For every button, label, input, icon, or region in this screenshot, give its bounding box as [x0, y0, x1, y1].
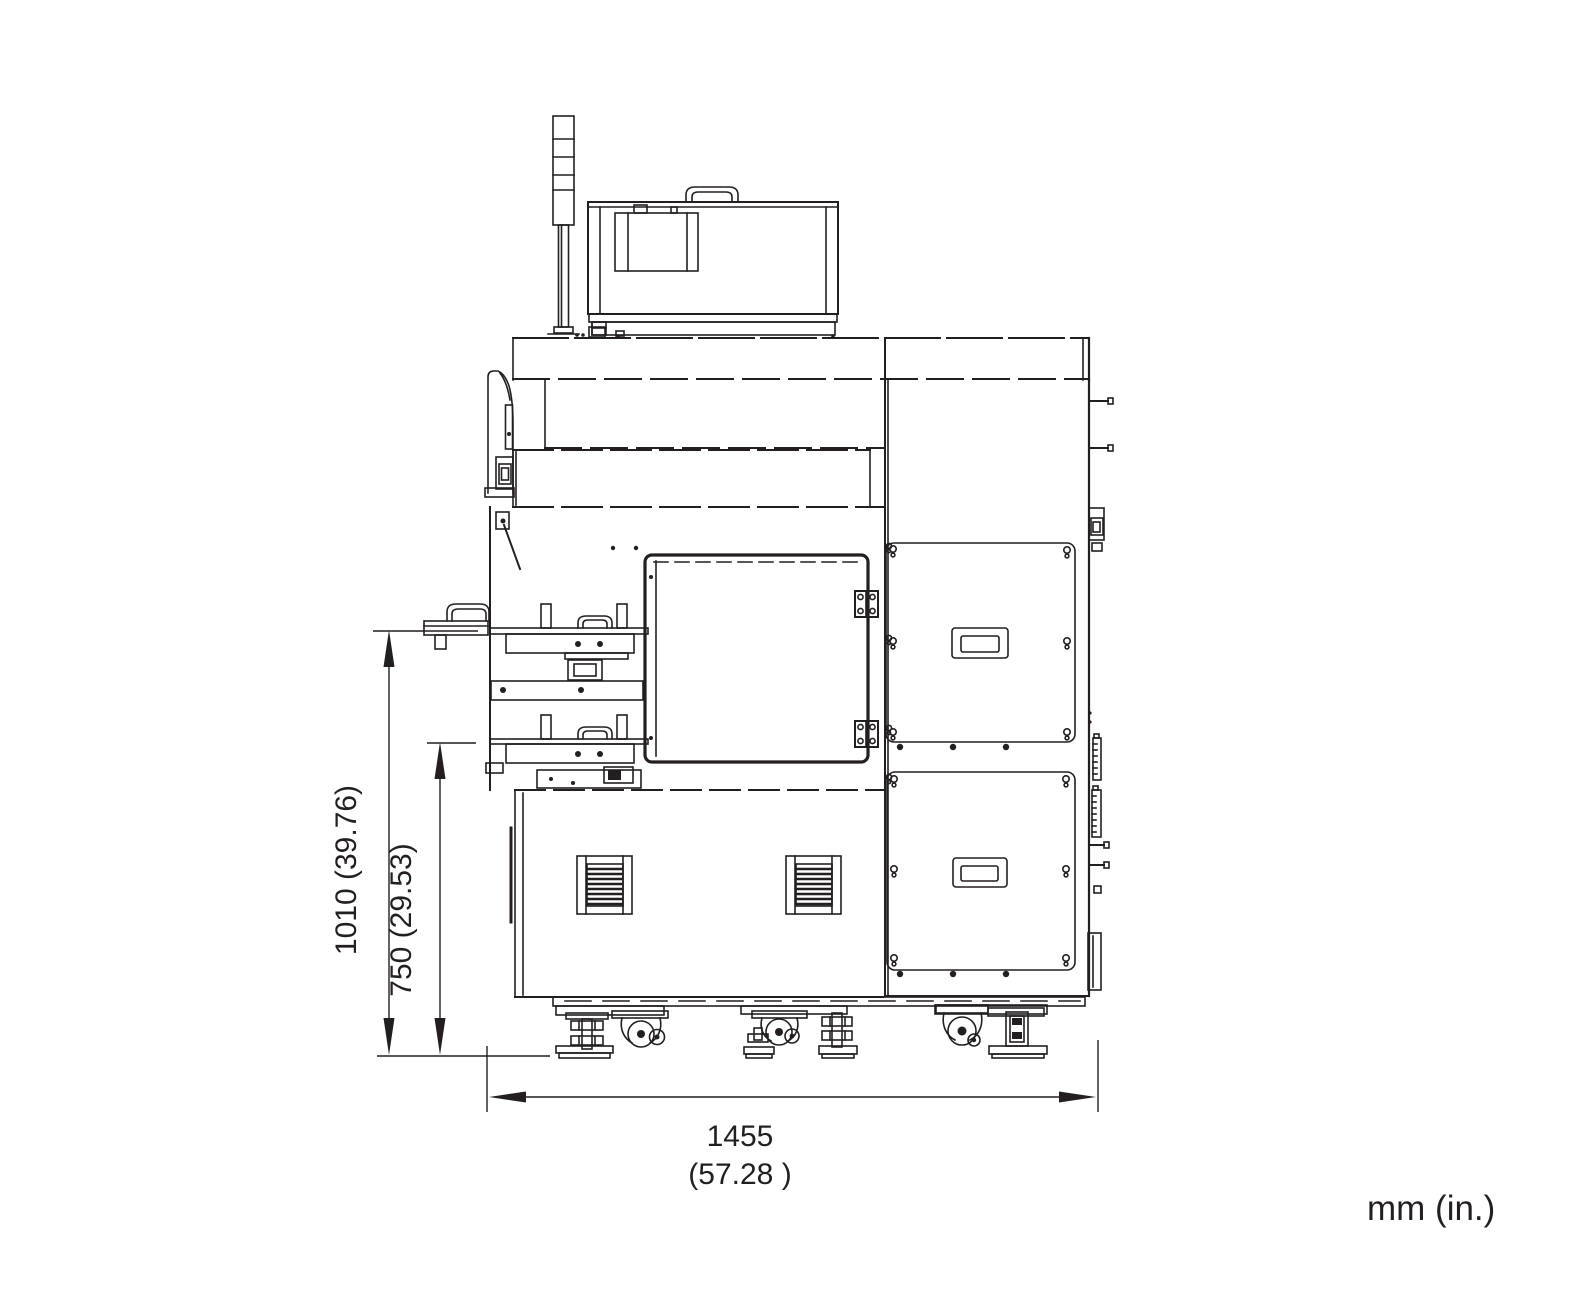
panel-screws — [890, 546, 1070, 740]
top-box-screen-panel — [615, 213, 698, 271]
leveling-foot-1 — [556, 1013, 613, 1058]
side-shelf — [424, 604, 489, 649]
terminal-strip-1 — [1093, 734, 1101, 780]
lower-right-panel — [887, 772, 1075, 970]
upper-right-panel — [886, 543, 1075, 742]
dim-label-table-height: 750 (29.53) — [385, 843, 418, 996]
door-hinge-top — [855, 591, 878, 617]
dim-label-overall-width-in: (57.28 ) — [688, 1158, 791, 1191]
front-lower-panel — [511, 790, 883, 997]
signal-tower-light — [548, 116, 579, 334]
dimension-table-height — [427, 742, 476, 1055]
caster-wheel-1 — [612, 1011, 668, 1047]
lower-tray — [486, 715, 648, 788]
recessed-handle-upper — [952, 628, 1008, 658]
center-door — [645, 555, 878, 762]
upper-tray — [490, 604, 648, 680]
right-clamp-latch — [1089, 508, 1104, 551]
dim-label-overall-height: 1010 (39.76) — [330, 785, 363, 955]
split-line-screws — [886, 543, 891, 783]
terminal-strip-2 — [1092, 786, 1101, 837]
dimension-drawing-page: 1010 (39.76) 750 (29.53) 1455 (57.28 ) m… — [0, 0, 1576, 1301]
right-edge-fittings — [1088, 398, 1113, 990]
diagonal-brace — [504, 525, 520, 569]
machine-lower-band — [513, 450, 883, 507]
machine-mid-band — [545, 380, 883, 448]
leveling-foot-2 — [744, 1028, 774, 1058]
machine-dimension-drawing: 1010 (39.76) 750 (29.53) 1455 (57.28 ) m… — [0, 0, 1576, 1301]
carry-handle — [686, 187, 738, 202]
leveling-foot-4 — [988, 1008, 1047, 1058]
left-clamp-latch — [496, 457, 513, 489]
vent-grille-right — [786, 856, 841, 914]
leveling-foot-3 — [819, 1013, 857, 1058]
right-module — [885, 338, 1113, 996]
tray-mid-rail — [491, 681, 643, 700]
caster-wheel-3 — [936, 1005, 988, 1046]
dim-label-overall-width-mm: 1455 — [707, 1120, 774, 1153]
units-note: mm (in.) — [1367, 1189, 1495, 1228]
dimension-overall-width — [487, 1040, 1098, 1112]
panel-screws — [891, 776, 1069, 966]
vent-grille-left — [577, 856, 632, 914]
top-cover-box — [588, 187, 838, 336]
recessed-handle-lower — [953, 858, 1007, 887]
door-hinge-bottom — [855, 721, 878, 747]
